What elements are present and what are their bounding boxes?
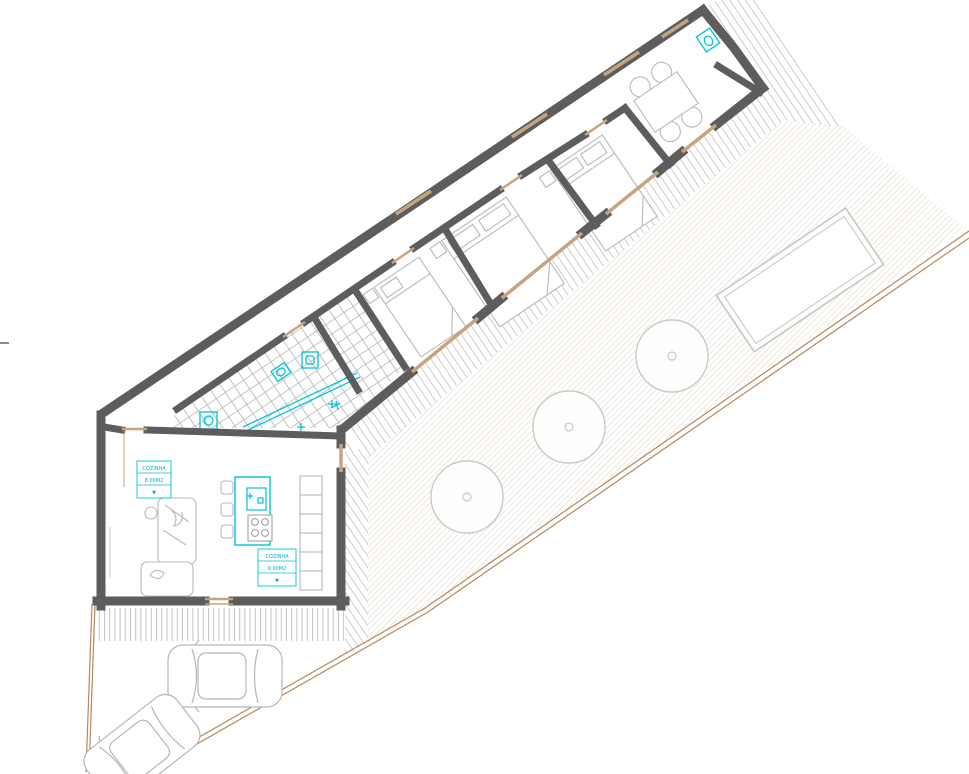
tree bbox=[533, 391, 605, 463]
entry-paving-band bbox=[94, 607, 344, 641]
tree bbox=[431, 461, 503, 533]
room-label-kitchen-small: COZINHA 8.00M2 ▼ bbox=[137, 461, 171, 498]
room-label-area: 8.00M2 bbox=[145, 478, 164, 484]
kitchen-island bbox=[235, 477, 272, 545]
kitchen-counter bbox=[300, 476, 322, 590]
floor-plan-drawing: COZINHA 8.00M2 ▼ COZINHA 9.00M2 ▼ bbox=[0, 0, 969, 774]
room-label-marker: ▼ bbox=[275, 578, 279, 584]
cooktop-icon bbox=[248, 515, 272, 541]
room-label-kitchen-main: COZINHA 9.00M2 ▼ bbox=[258, 549, 296, 586]
room-label-name: COZINHA bbox=[142, 466, 166, 472]
site-plan-canvas: COZINHA 8.00M2 ▼ COZINHA 9.00M2 ▼ bbox=[0, 0, 969, 774]
room-label-marker: ▼ bbox=[152, 490, 156, 496]
parked-car bbox=[168, 640, 282, 712]
tree bbox=[636, 320, 708, 392]
bar-stools bbox=[221, 481, 233, 538]
room-label-area: 9.00M2 bbox=[268, 566, 287, 572]
room-label-name: COZINHA bbox=[265, 554, 289, 560]
